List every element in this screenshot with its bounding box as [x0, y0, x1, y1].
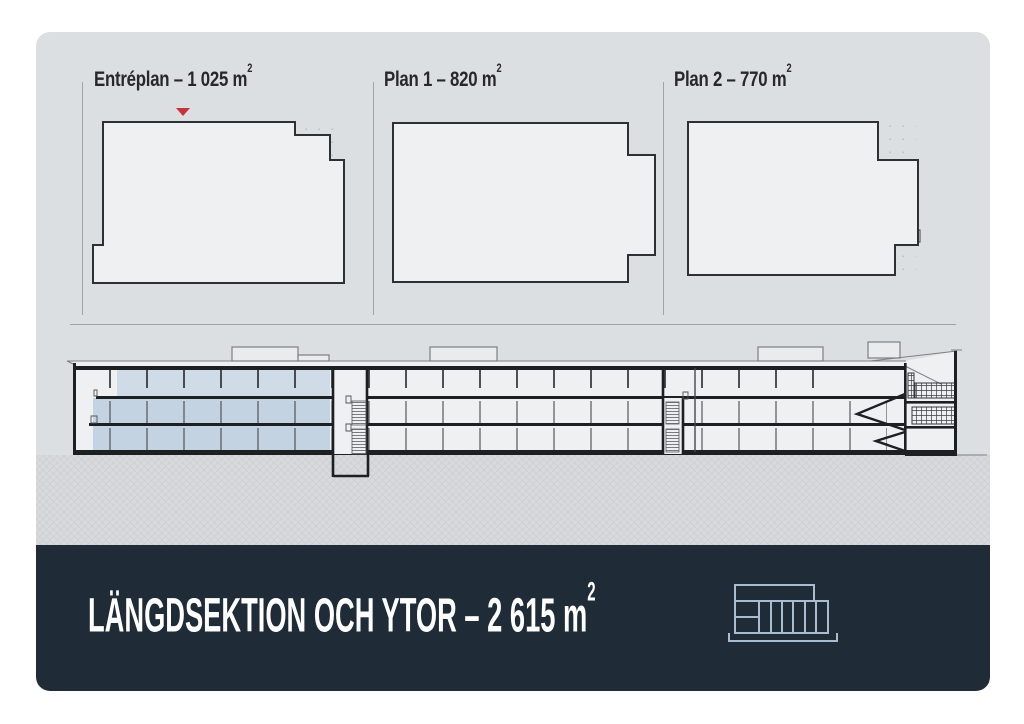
sheet-title-text: LÄNGDSEKTION OCH YTOR – 2 615 m — [88, 589, 587, 643]
plan1-title: Plan 1 – 820 m2 — [384, 68, 531, 92]
building-section-icon — [720, 581, 850, 653]
entreplan-label: Entréplan – 1 025 m — [94, 68, 247, 91]
drawing-sheet: Entréplan – 1 025 m2 Plan 1 – 820 m2 Pla… — [36, 32, 990, 691]
upper-columns — [92, 401, 887, 423]
plan2-title: Plan 2 – 770 m2 — [674, 68, 821, 92]
roof-column-ticks — [92, 370, 826, 388]
plan2-label: Plan 2 – 770 m — [674, 68, 786, 91]
lower-columns — [92, 428, 887, 450]
plan2-floor-plan — [681, 112, 961, 292]
plan1-floor-plan — [384, 112, 664, 297]
longitudinal-section-drawing — [36, 330, 990, 545]
plan-divider-2 — [373, 82, 374, 315]
footer-band: LÄNGDSEKTION OCH YTOR – 2 615 m2 — [36, 545, 990, 691]
plan1-label: Plan 1 – 820 m — [384, 68, 496, 91]
page: Entréplan – 1 025 m2 Plan 1 – 820 m2 Pla… — [0, 0, 1024, 724]
ground-hatch — [36, 455, 990, 545]
plan-divider-1 — [82, 82, 83, 315]
entreplan-title: Entréplan – 1 025 m2 — [94, 68, 292, 92]
entreplan-floor-plan — [84, 102, 364, 292]
row-divider-line — [70, 324, 956, 325]
